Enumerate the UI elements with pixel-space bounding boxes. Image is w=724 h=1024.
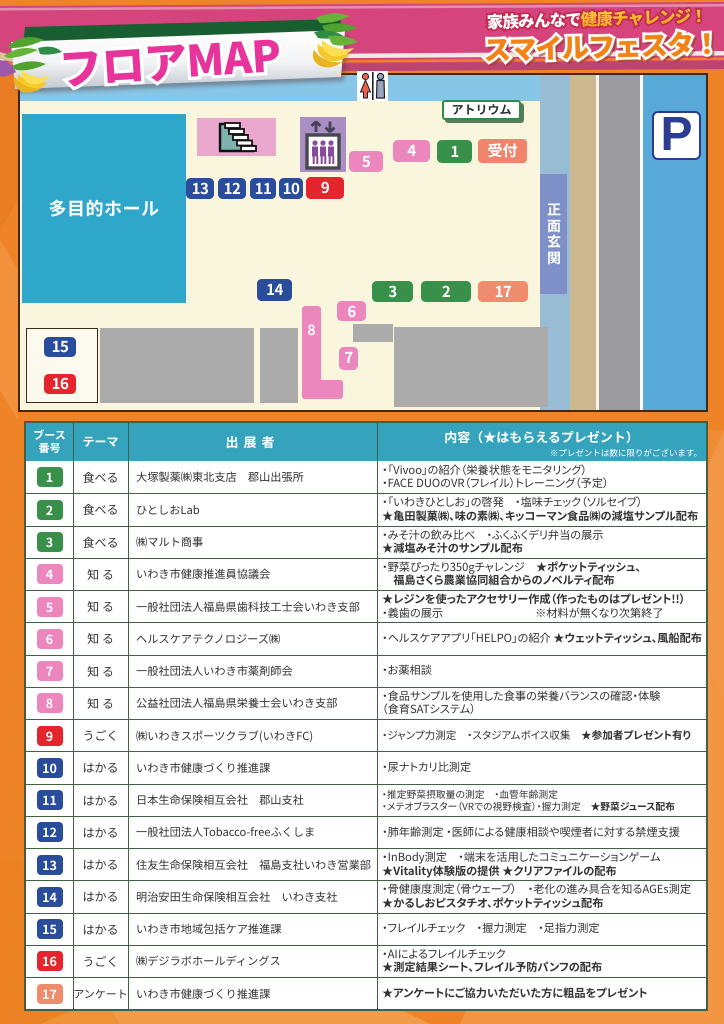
svg-text:フロアMAP: フロアMAP [57, 22, 282, 98]
svg-text:スマイルフェスタ！: スマイルフェスタ！ [483, 22, 720, 69]
